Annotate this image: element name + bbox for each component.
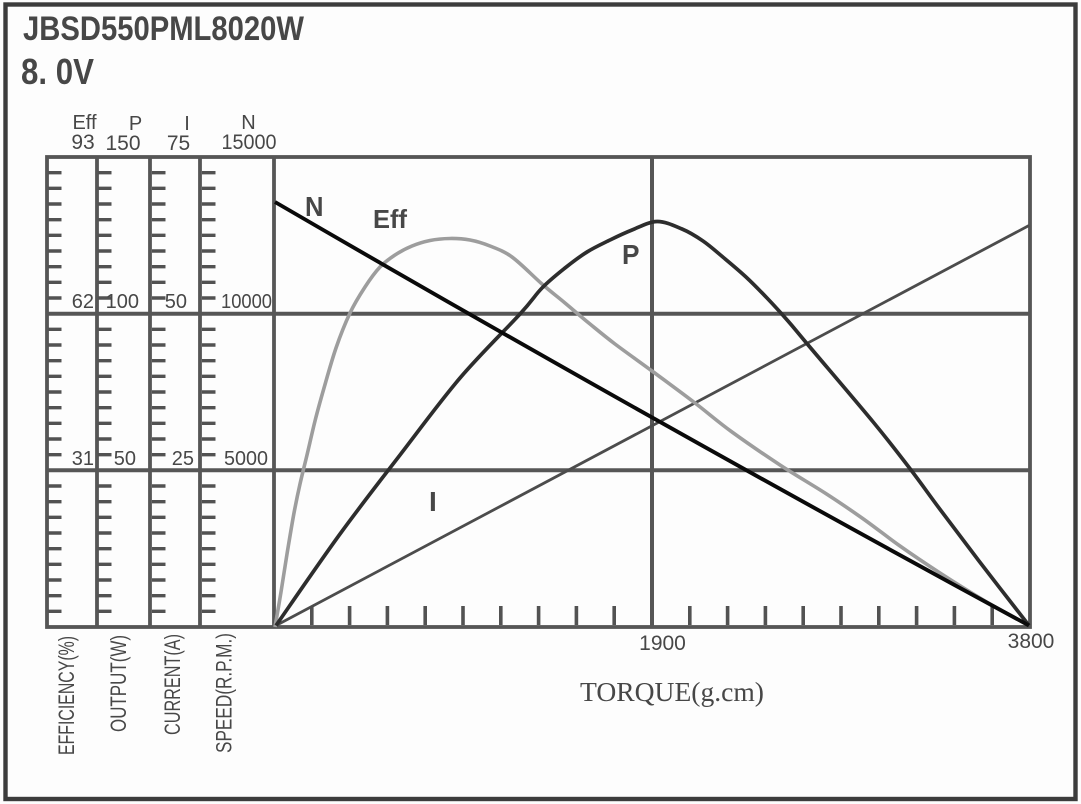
svg-text:TORQUE(g.cm): TORQUE(g.cm) (580, 677, 764, 707)
svg-text:P: P (622, 239, 640, 270)
svg-text:JBSD550PML8020W: JBSD550PML8020W (23, 10, 305, 48)
svg-text:CURRENT(A): CURRENT(A) (160, 634, 185, 735)
svg-text:5000: 5000 (224, 448, 268, 470)
svg-text:15000: 15000 (222, 131, 277, 154)
svg-text:EFFICIENCY(%): EFFICIENCY(%) (54, 636, 79, 755)
svg-text:8. 0V: 8. 0V (21, 51, 94, 92)
svg-text:31: 31 (72, 448, 94, 470)
svg-text:1900: 1900 (639, 632, 686, 655)
svg-text:50: 50 (165, 291, 187, 313)
svg-text:75: 75 (167, 132, 190, 155)
svg-text:10000: 10000 (221, 291, 272, 313)
svg-text:OUTPUT(W): OUTPUT(W) (106, 635, 131, 732)
svg-text:93: 93 (71, 131, 94, 154)
svg-text:3800: 3800 (1008, 630, 1055, 653)
svg-text:N: N (305, 191, 324, 222)
svg-text:25: 25 (172, 448, 194, 470)
svg-text:150: 150 (105, 132, 140, 155)
svg-text:I: I (429, 486, 437, 517)
svg-text:62: 62 (72, 291, 94, 313)
svg-text:Eff: Eff (373, 204, 407, 234)
svg-text:SPEED(R.P.M.): SPEED(R.P.M.) (212, 633, 237, 753)
svg-text:100: 100 (106, 291, 139, 313)
svg-text:50: 50 (114, 448, 136, 470)
